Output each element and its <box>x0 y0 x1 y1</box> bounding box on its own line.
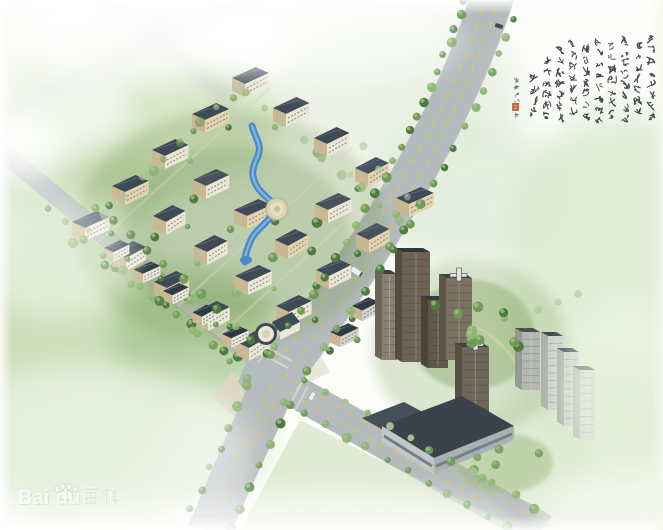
tree <box>154 296 164 306</box>
tree <box>361 442 369 450</box>
tree <box>343 239 351 247</box>
tree <box>425 446 433 454</box>
tree <box>480 87 488 95</box>
tree <box>535 449 543 457</box>
tree <box>478 474 487 483</box>
tree <box>209 341 218 350</box>
tree <box>320 273 328 281</box>
tree <box>488 479 496 487</box>
tree <box>213 104 219 110</box>
tree <box>430 300 440 310</box>
tree <box>426 480 433 487</box>
tree <box>406 126 414 134</box>
tree <box>361 287 370 296</box>
tree <box>382 172 392 182</box>
tree <box>466 328 477 339</box>
tree <box>491 460 500 469</box>
tree <box>399 225 408 234</box>
tree <box>301 377 307 383</box>
tree <box>302 366 311 375</box>
tree <box>341 399 349 407</box>
tree <box>189 195 198 204</box>
tree <box>256 462 263 469</box>
watermark-text-du: du <box>56 487 80 509</box>
tree <box>143 246 152 255</box>
tree <box>119 193 128 202</box>
artist-seal <box>512 103 519 111</box>
tree <box>472 103 481 112</box>
tree <box>242 374 251 383</box>
tree <box>242 88 250 96</box>
tree <box>376 202 383 209</box>
tree <box>173 311 181 319</box>
tree <box>404 194 411 201</box>
tree <box>386 422 394 430</box>
tree <box>158 275 164 281</box>
edge-fade-right <box>651 0 663 530</box>
edge-fade-left <box>0 0 12 530</box>
tree <box>346 307 355 316</box>
tree <box>427 82 437 92</box>
tree <box>441 164 449 172</box>
tree <box>160 156 167 163</box>
tree <box>470 467 478 475</box>
tree <box>342 433 352 443</box>
tree <box>307 246 316 255</box>
tree <box>430 180 438 188</box>
tree <box>495 445 504 454</box>
tree <box>196 289 206 299</box>
tree <box>105 202 113 210</box>
tree <box>139 173 146 180</box>
small-tower <box>515 328 540 390</box>
tree <box>475 335 485 345</box>
tree <box>510 16 516 22</box>
tree <box>227 358 233 364</box>
tree <box>246 336 255 345</box>
tree <box>318 154 326 162</box>
tree <box>272 124 278 130</box>
tree <box>189 326 197 334</box>
tree <box>446 457 455 466</box>
tree <box>499 308 508 317</box>
tree <box>280 398 288 406</box>
tree <box>187 158 193 164</box>
tree <box>376 265 385 274</box>
tree <box>461 123 468 130</box>
tree <box>233 82 242 91</box>
tree <box>179 274 189 284</box>
tree <box>150 233 159 242</box>
tree <box>354 336 361 343</box>
tree <box>434 69 441 76</box>
tree <box>443 489 452 498</box>
tree <box>501 33 510 42</box>
tree <box>419 98 428 107</box>
tree <box>554 298 561 305</box>
tree <box>390 246 397 253</box>
tree <box>186 296 195 305</box>
tree <box>398 144 405 151</box>
edge-fade-bottom <box>0 516 663 530</box>
tree <box>320 343 328 351</box>
tree <box>266 350 275 359</box>
tree <box>361 204 370 213</box>
tree <box>453 309 463 319</box>
tree <box>301 410 308 417</box>
tree <box>354 250 361 257</box>
tree <box>227 226 234 233</box>
scene-svg: Bai Bai du du <box>0 0 663 530</box>
tree <box>364 410 371 417</box>
tree <box>534 306 542 314</box>
tree <box>271 286 276 291</box>
tree <box>395 217 404 226</box>
tree <box>225 124 231 130</box>
tree <box>176 139 184 147</box>
tree <box>185 224 190 229</box>
circular-plaza <box>266 198 288 220</box>
tree <box>574 290 582 298</box>
tree <box>413 113 421 121</box>
tree <box>473 302 483 312</box>
tree <box>389 157 396 164</box>
tree <box>219 346 228 355</box>
tree <box>357 183 366 192</box>
tree <box>416 199 426 209</box>
tree <box>337 170 347 180</box>
tree <box>359 142 367 150</box>
tree <box>212 304 222 314</box>
tree <box>512 490 520 498</box>
tree <box>266 440 275 449</box>
tree <box>509 337 519 347</box>
tree <box>322 420 330 428</box>
tree <box>370 188 380 198</box>
tree <box>312 316 319 323</box>
tree <box>137 283 144 290</box>
tree <box>149 166 159 176</box>
tree <box>271 343 278 350</box>
tree <box>385 457 391 463</box>
tree <box>450 145 457 152</box>
tree <box>285 322 292 329</box>
tree <box>261 105 268 112</box>
tree <box>333 325 341 333</box>
tree <box>474 454 482 462</box>
slab-tower <box>375 270 397 360</box>
edge-fade-top <box>0 0 663 14</box>
aerial-rendering-image: Bai Bai du du <box>0 0 663 530</box>
tree <box>195 117 205 127</box>
tree <box>268 253 278 263</box>
tree <box>213 322 219 328</box>
tree <box>408 159 414 165</box>
tree <box>127 281 134 288</box>
tree <box>405 467 411 473</box>
tree <box>331 253 341 263</box>
watermark-text-bai: Bai <box>18 487 49 509</box>
tree <box>309 290 319 300</box>
tree <box>375 165 383 173</box>
tree <box>232 322 240 330</box>
tree <box>232 401 242 411</box>
tree <box>300 136 309 145</box>
tree <box>278 120 285 127</box>
tree <box>245 482 255 492</box>
tree <box>322 389 329 396</box>
tree <box>230 94 237 101</box>
tree <box>352 221 360 229</box>
tree <box>276 418 286 428</box>
tree <box>347 171 353 177</box>
tree <box>190 128 196 134</box>
tree <box>297 307 305 315</box>
tree <box>159 260 167 268</box>
tree <box>407 435 414 442</box>
